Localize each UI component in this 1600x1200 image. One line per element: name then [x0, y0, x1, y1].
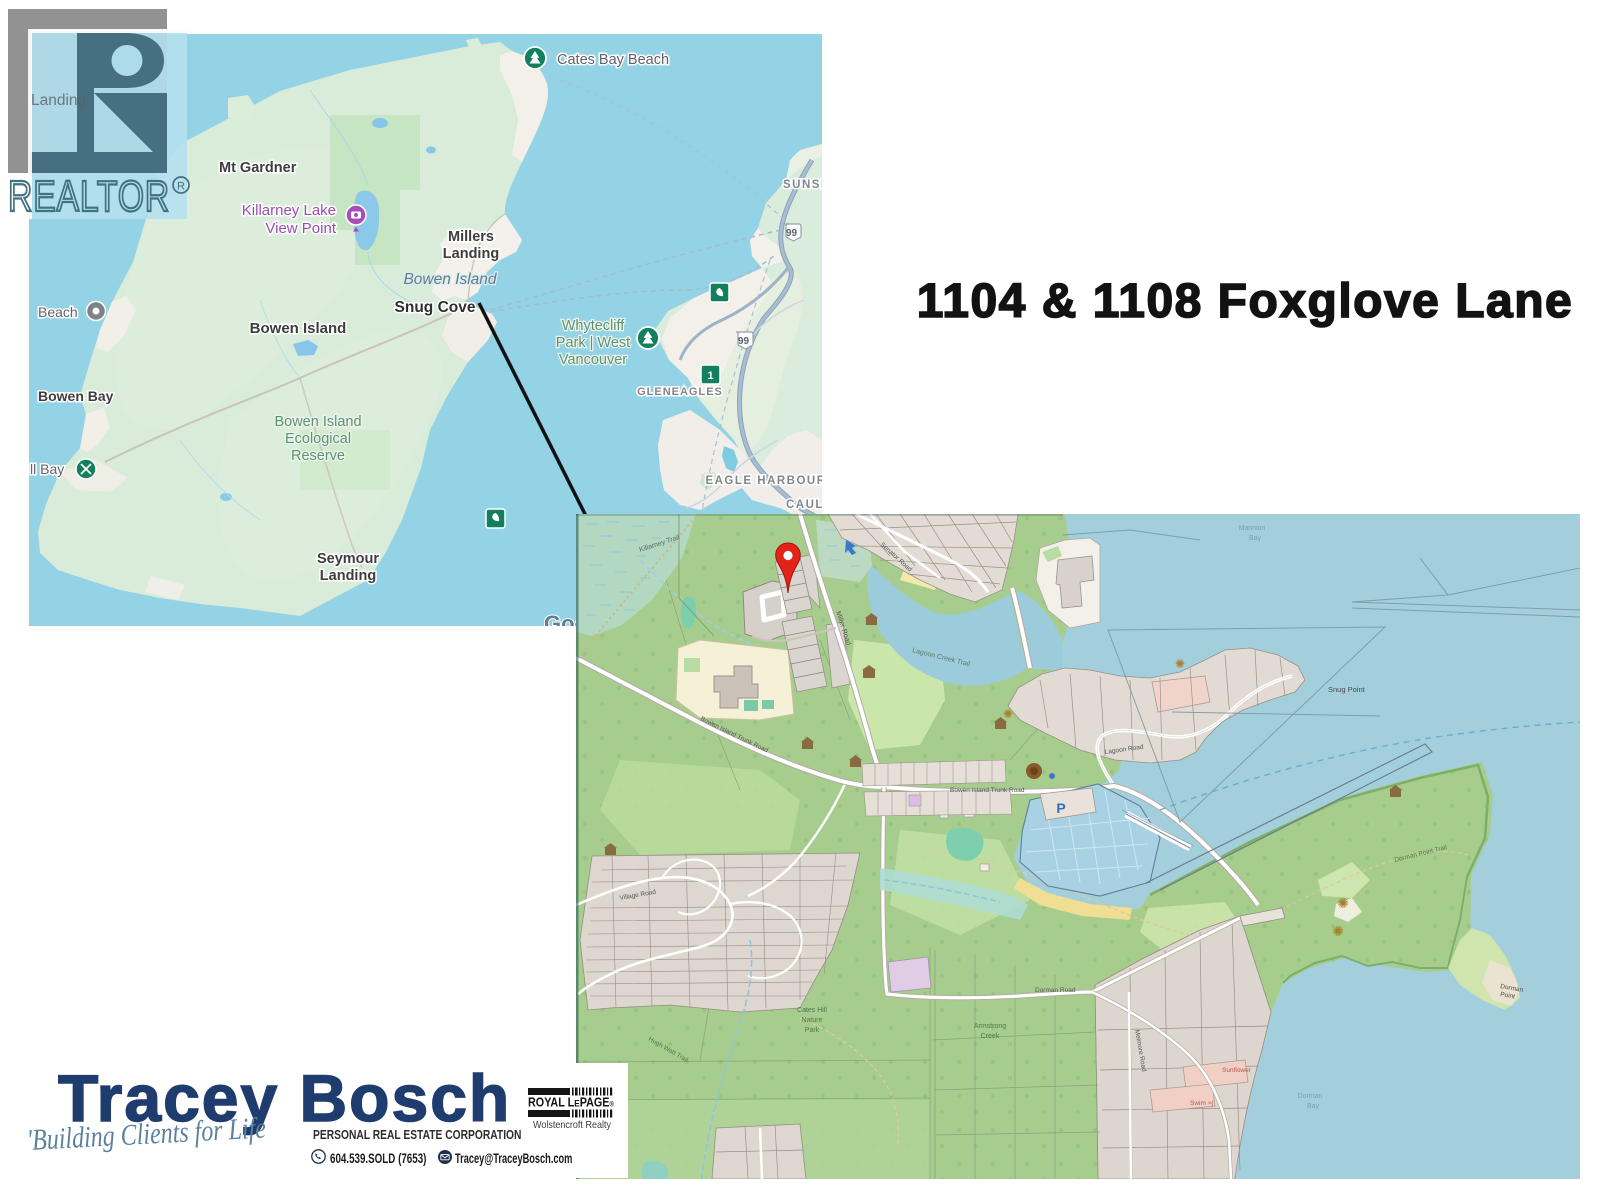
svg-text:Sunflower: Sunflower: [1222, 1067, 1252, 1074]
svg-text:Creek: Creek: [981, 1033, 1000, 1040]
svg-text:Snug Cove: Snug Cove: [395, 299, 476, 316]
svg-text:Nature: Nature: [801, 1017, 822, 1024]
svg-text:Ecological: Ecological: [285, 431, 351, 447]
svg-text:Vancouver: Vancouver: [559, 352, 627, 368]
svg-text:Beach: Beach: [38, 304, 78, 320]
svg-text:Bowen Island: Bowen Island: [403, 271, 497, 288]
svg-text:Cates Hill: Cates Hill: [797, 1007, 827, 1014]
svg-text:CAULFI: CAULFI: [786, 499, 822, 511]
svg-text:Landing: Landing: [320, 568, 376, 584]
svg-text:Whytecliff: Whytecliff: [562, 318, 626, 334]
svg-text:✺: ✺: [1175, 657, 1185, 671]
svg-text:✺: ✺: [1003, 707, 1013, 721]
svg-text:Bowen Island Trunk Road: Bowen Island Trunk Road: [950, 787, 1025, 794]
svg-text:Park: Park: [805, 1027, 820, 1034]
svg-text:Cates Bay Beach: Cates Bay Beach: [557, 52, 669, 68]
svg-text:View Point: View Point: [265, 220, 336, 237]
svg-text:GLENEAGLES: GLENEAGLES: [637, 386, 723, 398]
svg-text:ROYAL LEPAGE®: ROYAL LEPAGE®: [528, 1096, 615, 1110]
svg-text:Landing: Landing: [443, 246, 499, 262]
svg-text:Mannion: Mannion: [1239, 525, 1266, 532]
svg-text:Millers: Millers: [448, 229, 494, 245]
svg-text:Reserve: Reserve: [291, 448, 345, 464]
svg-text:99: 99: [786, 228, 798, 239]
svg-text:99: 99: [738, 336, 750, 347]
svg-text:SUNSET: SUNSET: [783, 179, 822, 191]
svg-text:Swim ×{: Swim ×{: [1190, 1100, 1214, 1107]
svg-text:Armstrong: Armstrong: [974, 1023, 1006, 1030]
svg-text:Bay: Bay: [1249, 535, 1262, 542]
svg-text:1: 1: [707, 370, 713, 382]
svg-text:Park | West: Park | West: [556, 335, 630, 351]
svg-text:P: P: [1056, 800, 1065, 816]
svg-text:Dorman: Dorman: [1298, 1093, 1323, 1100]
svg-text:Snug Point: Snug Point: [1328, 685, 1366, 694]
svg-text:EAGLE HARBOUR: EAGLE HARBOUR: [705, 475, 822, 487]
svg-text:R: R: [177, 181, 185, 193]
svg-text:Bowen Island: Bowen Island: [274, 414, 361, 430]
svg-text:Bowen Bay: Bowen Bay: [38, 388, 114, 404]
svg-text:Wolstencroft Realty: Wolstencroft Realty: [533, 1119, 612, 1131]
svg-text:Seymour: Seymour: [317, 551, 379, 567]
svg-text:Bay: Bay: [1307, 1103, 1320, 1110]
svg-text:REALTOR: REALTOR: [8, 172, 170, 221]
svg-text:Dorman Road: Dorman Road: [1035, 987, 1076, 994]
svg-text:Landing: Landing: [31, 92, 86, 109]
svg-text:✺: ✺: [1337, 895, 1349, 911]
svg-text:✺: ✺: [1332, 923, 1344, 939]
svg-text:ll Bay: ll Bay: [30, 461, 64, 477]
svg-text:Bowen Island: Bowen Island: [250, 320, 347, 337]
